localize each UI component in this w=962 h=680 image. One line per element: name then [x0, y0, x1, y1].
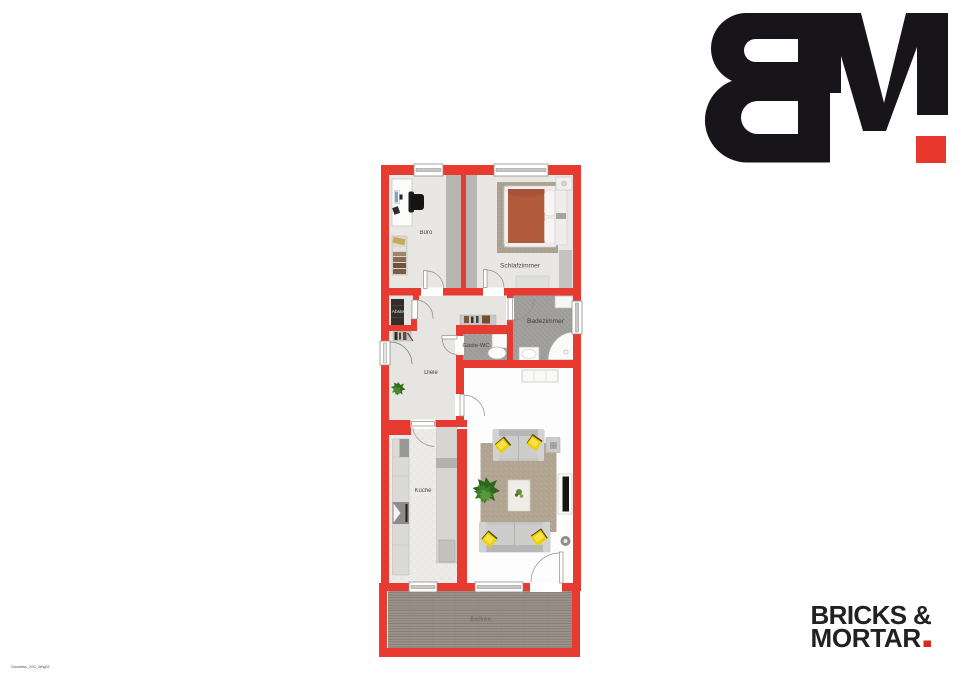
svg-text:Büro: Büro	[420, 230, 433, 236]
svg-text:Schlafzimmer: Schlafzimmer	[500, 263, 541, 270]
svg-text:Gäste-WC: Gäste-WC	[462, 343, 489, 349]
svg-text:MORTAR: MORTAR	[811, 623, 922, 653]
svg-text:Diele: Diele	[424, 370, 438, 376]
svg-text:Balkon: Balkon	[470, 617, 491, 623]
svg-text:Grundriss_2OG_Whg03: Grundriss_2OG_Whg03	[11, 665, 50, 669]
svg-text:Abstell: Abstell	[392, 309, 406, 315]
svg-text:Badezimmer: Badezimmer	[527, 318, 565, 325]
svg-text:Küche: Küche	[414, 488, 432, 494]
